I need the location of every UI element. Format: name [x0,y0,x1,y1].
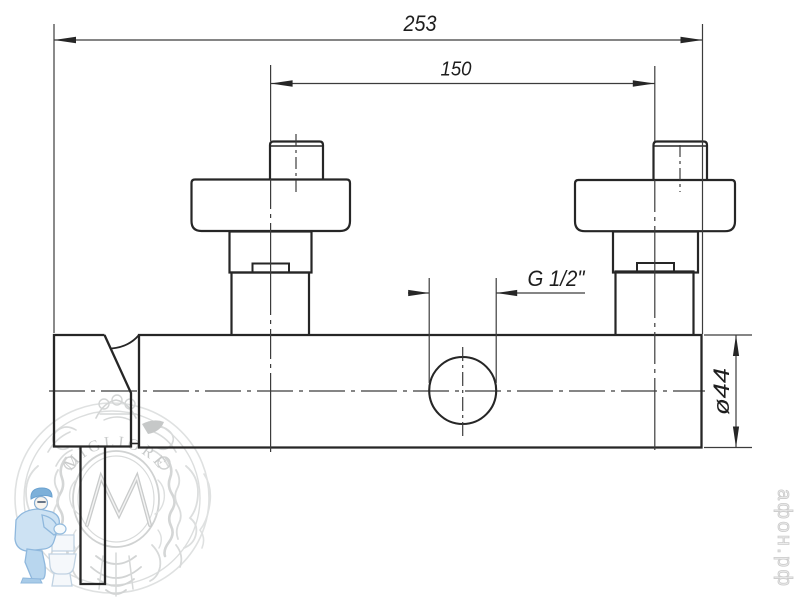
svg-text:253: 253 [403,11,438,36]
svg-text:афон.рф: афон.рф [773,489,795,588]
svg-text:150: 150 [441,59,472,81]
svg-text:G 1/2": G 1/2" [528,266,586,291]
svg-text:ø44: ø44 [709,368,734,415]
